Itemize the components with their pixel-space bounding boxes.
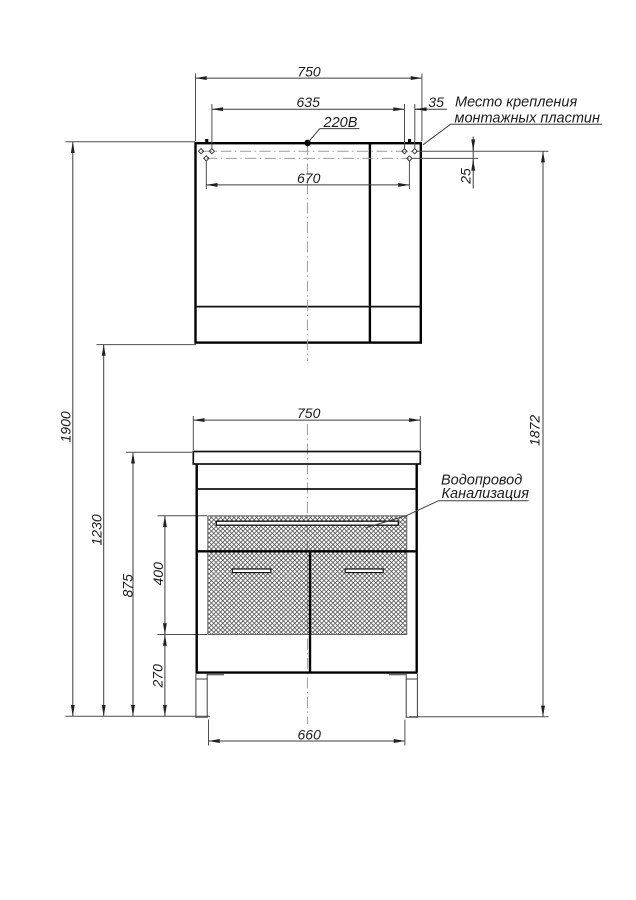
svg-text:875: 875 [119, 574, 135, 598]
svg-text:635: 635 [297, 94, 321, 110]
svg-text:Место крепления: Место крепления [455, 95, 577, 111]
svg-text:1230: 1230 [88, 514, 104, 545]
svg-text:1872: 1872 [527, 415, 543, 446]
svg-text:660: 660 [298, 726, 322, 742]
svg-text:750: 750 [297, 405, 321, 421]
svg-text:25: 25 [458, 168, 474, 185]
svg-text:1900: 1900 [58, 411, 74, 442]
svg-text:270: 270 [150, 664, 166, 689]
svg-text:400: 400 [150, 562, 166, 586]
svg-text:35: 35 [428, 94, 444, 110]
svg-text:670: 670 [297, 170, 321, 186]
svg-text:750: 750 [297, 63, 321, 79]
svg-text:Канализация: Канализация [442, 486, 530, 502]
